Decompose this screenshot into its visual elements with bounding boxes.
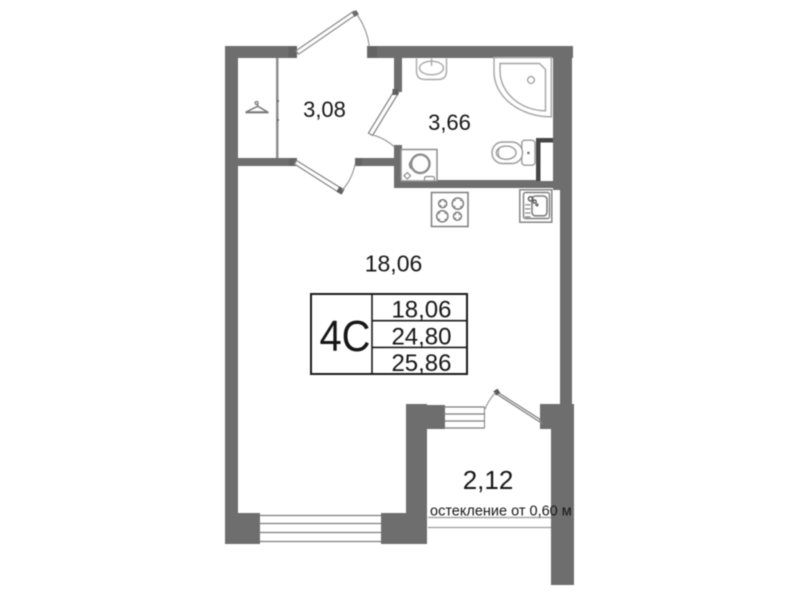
svg-text:18,06: 18,06: [391, 297, 451, 324]
svg-text:25,86: 25,86: [391, 350, 451, 377]
svg-text:остекление от 0,60 м: остекление от 0,60 м: [430, 504, 572, 520]
svg-text:24,80: 24,80: [391, 323, 451, 350]
svg-text:2,12: 2,12: [463, 465, 514, 495]
svg-text:3,66: 3,66: [428, 110, 471, 135]
svg-text:18,06: 18,06: [365, 251, 423, 277]
svg-text:3,08: 3,08: [303, 97, 346, 122]
svg-text:4C: 4C: [320, 313, 371, 361]
